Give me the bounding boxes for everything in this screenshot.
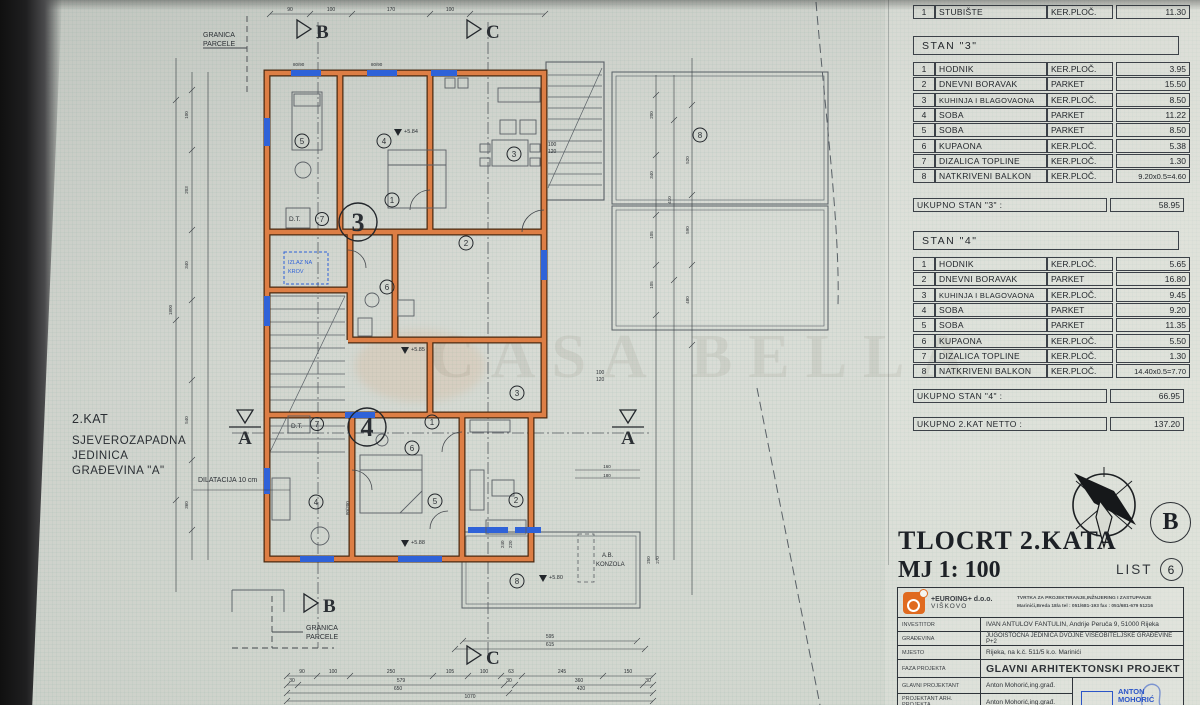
svg-text:D.T.: D.T. <box>291 423 303 430</box>
stan3-header: STAN "3" <box>913 36 1179 55</box>
svg-text:650: 650 <box>394 686 403 692</box>
svg-text:7: 7 <box>320 215 325 224</box>
dimension-lines <box>173 11 695 704</box>
svg-text:3: 3 <box>512 150 517 159</box>
svg-text:63: 63 <box>508 669 514 675</box>
table-row: 6KUPAONAKER.PLOČ.5.50 <box>913 334 1190 348</box>
dilatacija-label: DILATACIJA 10 cm <box>198 477 257 484</box>
table-row: 3KUHINJA I BLAGOVAONAKER.PLOČ.8.50 <box>913 93 1190 107</box>
title-block-row: GLAVNI PROJEKTANT Anton Mohorić,ing.građ… <box>898 678 1072 694</box>
floor-netto-total-row: UKUPNO 2.KAT NETTO : 137.20 <box>913 417 1184 431</box>
svg-text:3: 3 <box>352 208 365 237</box>
sheet-title: TLOCRT 2.KATA <box>898 526 1117 556</box>
svg-text:120: 120 <box>596 377 605 383</box>
balcony-outline <box>462 532 640 608</box>
svg-text:100: 100 <box>548 142 557 148</box>
svg-text:8: 8 <box>698 131 703 140</box>
svg-text:2: 2 <box>514 496 519 505</box>
svg-text:100: 100 <box>329 669 338 675</box>
svg-text:KONZOLA: KONZOLA <box>596 562 625 568</box>
svg-text:105: 105 <box>649 231 654 239</box>
stan4-total-row: UKUPNO STAN "4" : 66.95 <box>913 389 1184 403</box>
section-c-top: C <box>486 22 500 43</box>
svg-text:160: 160 <box>603 464 611 469</box>
svg-text:180: 180 <box>603 473 611 478</box>
svg-text:5: 5 <box>300 137 305 146</box>
svg-text:8: 8 <box>515 577 520 586</box>
svg-text:105: 105 <box>446 669 455 675</box>
firm-description: TVRTKA ZA PROJEKTIRANJE,INŽNJERING I ZAS… <box>1017 595 1179 602</box>
title-block-row-faza: FAZA PROJEKTA GLAVNI ARHITEKTONSKI PROJE… <box>898 660 1183 678</box>
title-block-firm-header: +EUROING+ d.o.o. VIŠKOVO TVRTKA ZA PROJE… <box>898 588 1183 618</box>
svg-text:4: 4 <box>382 137 387 146</box>
table-row: 1HODNIKKER.PLOČ.5.65 <box>913 257 1190 271</box>
title-block-row: GRAĐEVINA JUGOISTOČNA JEDINICA DVOJNE VI… <box>898 632 1183 646</box>
furniture <box>272 78 540 545</box>
sheet-scale: MJ 1: 100 <box>898 557 1001 584</box>
svg-text:4: 4 <box>314 498 319 507</box>
svg-text:+5.84: +5.84 <box>404 129 418 135</box>
svg-text:595: 595 <box>546 634 555 640</box>
elevation-marks <box>394 129 547 582</box>
svg-text:250: 250 <box>387 669 396 675</box>
svg-text:1: 1 <box>430 418 435 427</box>
svg-text:30: 30 <box>289 678 295 684</box>
svg-text:80/200: 80/200 <box>345 501 350 515</box>
svg-text:203: 203 <box>184 186 189 194</box>
section-b-top: B <box>316 22 329 43</box>
firm-contact: Marinići,Breda 18/a tel : 051/681-193 fa… <box>1017 603 1179 610</box>
section-a-left: A <box>238 428 252 449</box>
svg-text:520: 520 <box>685 156 690 164</box>
granica-parcele-bottom: GRANICA <box>306 625 338 632</box>
stamp-box <box>1081 691 1113 705</box>
ab-console-dash <box>578 534 594 582</box>
sheet-edge-line <box>888 0 889 565</box>
internal-staircase <box>270 296 345 452</box>
svg-text:30: 30 <box>506 678 512 684</box>
svg-text:240: 240 <box>500 540 505 548</box>
svg-text:120: 120 <box>548 149 557 155</box>
svg-text:340: 340 <box>649 171 654 179</box>
stairwell-annex <box>546 62 604 200</box>
table-row: 7DIZALICA TOPLINEKER.PLOČ.1.30 <box>913 154 1190 168</box>
terrace-outline <box>612 72 828 330</box>
firm-name: +EUROING+ d.o.o. <box>931 596 1017 603</box>
table-row: 6KUPAONAKER.PLOČ.5.38 <box>913 139 1190 153</box>
sheet-number: LIST 6 <box>1116 558 1183 581</box>
firm-city: VIŠKOVO <box>931 603 1017 610</box>
plan-title-note: 2.KAT SJEVEROZAPADNA JEDINICA GRAĐEVINA … <box>72 412 186 480</box>
svg-text:IZLAZ NA: IZLAZ NA <box>288 260 312 266</box>
lower-floor-stub <box>232 590 284 612</box>
table-row: 3KUHINJA I BLAGOVAONAKER.PLOČ.9.45 <box>913 288 1190 302</box>
stamp-name: ANTON MOHORIĆ <box>1118 688 1180 705</box>
title-block-row: PROJEKTANT ARH. PROJEKTA Anton Mohorić,i… <box>898 694 1072 705</box>
svg-text:6: 6 <box>410 444 415 453</box>
floor-label: 2.KAT <box>72 412 186 426</box>
svg-text:D.T.: D.T. <box>289 216 301 223</box>
svg-text:105: 105 <box>649 281 654 289</box>
svg-text:360: 360 <box>575 678 584 684</box>
svg-text:615: 615 <box>546 642 555 648</box>
svg-text:100: 100 <box>184 111 189 119</box>
table-row: 1HODNIKKER.PLOČ.3.95 <box>913 62 1190 76</box>
section-b-bottom: B <box>323 596 336 617</box>
table-row: 7DIZALICA TOPLINEKER.PLOČ.1.30 <box>913 349 1190 363</box>
table-row: 5SOBAPARKET8.50 <box>913 123 1190 137</box>
table-row: 2DNEVNI BORAVAKPARKET16.80 <box>913 272 1190 286</box>
svg-text:7: 7 <box>315 420 320 429</box>
svg-text:150: 150 <box>624 669 633 675</box>
table-row: 4SOBAPARKET9.20 <box>913 303 1190 317</box>
svg-text:579: 579 <box>397 678 406 684</box>
svg-text:80/90: 80/90 <box>293 62 305 67</box>
floor-plan-sheet-photo: CASA BELLA <box>0 0 1200 705</box>
stan4-header: STAN "4" <box>913 231 1179 250</box>
title-block-bottom: GLAVNI PROJEKTANT Anton Mohorić,ing.građ… <box>898 678 1183 705</box>
roof-access-box <box>284 252 328 284</box>
svg-text:90: 90 <box>299 669 305 675</box>
section-c-bottom: C <box>486 648 500 669</box>
svg-text:30: 30 <box>645 678 651 684</box>
svg-text:200: 200 <box>649 111 654 119</box>
svg-text:220: 220 <box>508 540 513 548</box>
svg-text:2: 2 <box>464 239 469 248</box>
svg-text:250: 250 <box>646 556 651 564</box>
parcel-boundary-line <box>757 388 820 705</box>
svg-text:5: 5 <box>433 497 438 506</box>
svg-text:+5.88: +5.88 <box>411 540 425 546</box>
svg-text:1: 1 <box>390 196 395 205</box>
granica-parcele-top: GRANICA <box>203 32 235 39</box>
euroing-logo-icon <box>903 592 925 614</box>
title-block-row: MJESTO Rijeka, na k.č. 511/5 k.o. Marini… <box>898 646 1183 660</box>
svg-text:PARCELE: PARCELE <box>203 41 235 48</box>
svg-text:100: 100 <box>596 370 605 376</box>
parcel-boundary-line <box>816 2 838 305</box>
svg-text:245: 245 <box>558 669 567 675</box>
svg-text:420: 420 <box>577 686 586 692</box>
svg-text:KROV: KROV <box>288 269 304 275</box>
svg-text:4: 4 <box>361 413 374 442</box>
svg-text:PARCELE: PARCELE <box>306 634 338 641</box>
architect-stamp: ANTON MOHORIĆ <box>1072 678 1183 705</box>
ab-konzola-label: A.B. <box>602 553 614 559</box>
table-row: 8NATKRIVENI BALKONKER.PLOČ.9.20x0.5=4.60 <box>913 169 1190 183</box>
svg-text:1800: 1800 <box>168 304 173 315</box>
svg-text:590: 590 <box>685 226 690 234</box>
svg-text:1070: 1070 <box>464 694 475 700</box>
svg-text:6: 6 <box>385 283 390 292</box>
svg-text:340: 340 <box>184 261 189 269</box>
svg-text:+5.80: +5.80 <box>549 575 563 581</box>
svg-text:410: 410 <box>667 196 672 204</box>
table-row: 2DNEVNI BORAVAKPARKET15.50 <box>913 77 1190 91</box>
svg-text:+5.85: +5.85 <box>411 347 425 353</box>
svg-text:480: 480 <box>685 296 690 304</box>
svg-text:80/90: 80/90 <box>371 62 383 67</box>
title-block-row: INVESTITOR IVAN ANTULOV FANTULIN, Andrij… <box>898 618 1183 632</box>
stan3-total-row: UKUPNO STAN "3" : 58.95 <box>913 198 1184 212</box>
svg-text:270: 270 <box>655 556 660 564</box>
svg-text:360: 360 <box>184 501 189 509</box>
photo-top-shadow <box>0 0 1200 10</box>
building-letter-badge: B <box>1150 502 1191 543</box>
svg-text:3: 3 <box>515 389 520 398</box>
section-a-right: A <box>621 428 635 449</box>
title-block: +EUROING+ d.o.o. VIŠKOVO TVRTKA ZA PROJE… <box>897 587 1184 705</box>
table-row: 8NATKRIVENI BALKONKER.PLOČ.14.40x0.5=7.7… <box>913 364 1190 378</box>
table-row: 4SOBAPARKET11.22 <box>913 108 1190 122</box>
list-number-badge: 6 <box>1160 558 1183 581</box>
svg-text:100: 100 <box>480 669 489 675</box>
table-row: 5SOBAPARKET11.35 <box>913 318 1190 332</box>
door-arcs <box>348 190 544 529</box>
